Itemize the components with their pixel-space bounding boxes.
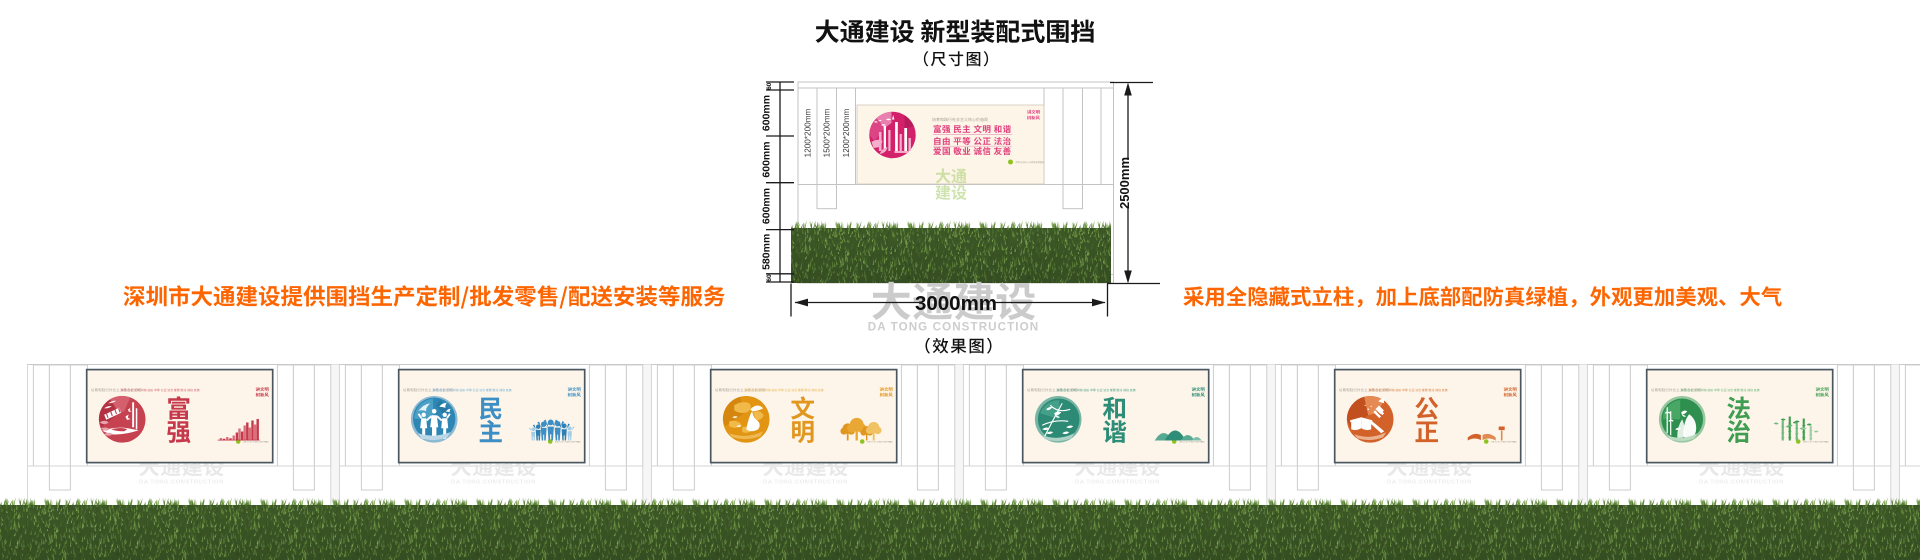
svg-text:600mm: 600mm xyxy=(761,188,773,224)
svg-text:60: 60 xyxy=(766,274,773,282)
svg-text:600mm: 600mm xyxy=(761,141,773,177)
svg-text:580mm: 580mm xyxy=(761,234,773,270)
svg-text:3000mm: 3000mm xyxy=(915,292,997,315)
svg-text:600mm: 600mm xyxy=(761,95,773,131)
svg-text:1200*200mm: 1200*200mm xyxy=(842,108,851,157)
svg-text:DA TONG CONSTRUCTION: DA TONG CONSTRUCTION xyxy=(868,321,1039,334)
svg-text:1200*200mm: 1200*200mm xyxy=(803,108,812,157)
svg-text:1500*200mm: 1500*200mm xyxy=(822,108,831,157)
svg-text:60: 60 xyxy=(766,82,773,90)
svg-text:2500mm: 2500mm xyxy=(1117,157,1132,209)
